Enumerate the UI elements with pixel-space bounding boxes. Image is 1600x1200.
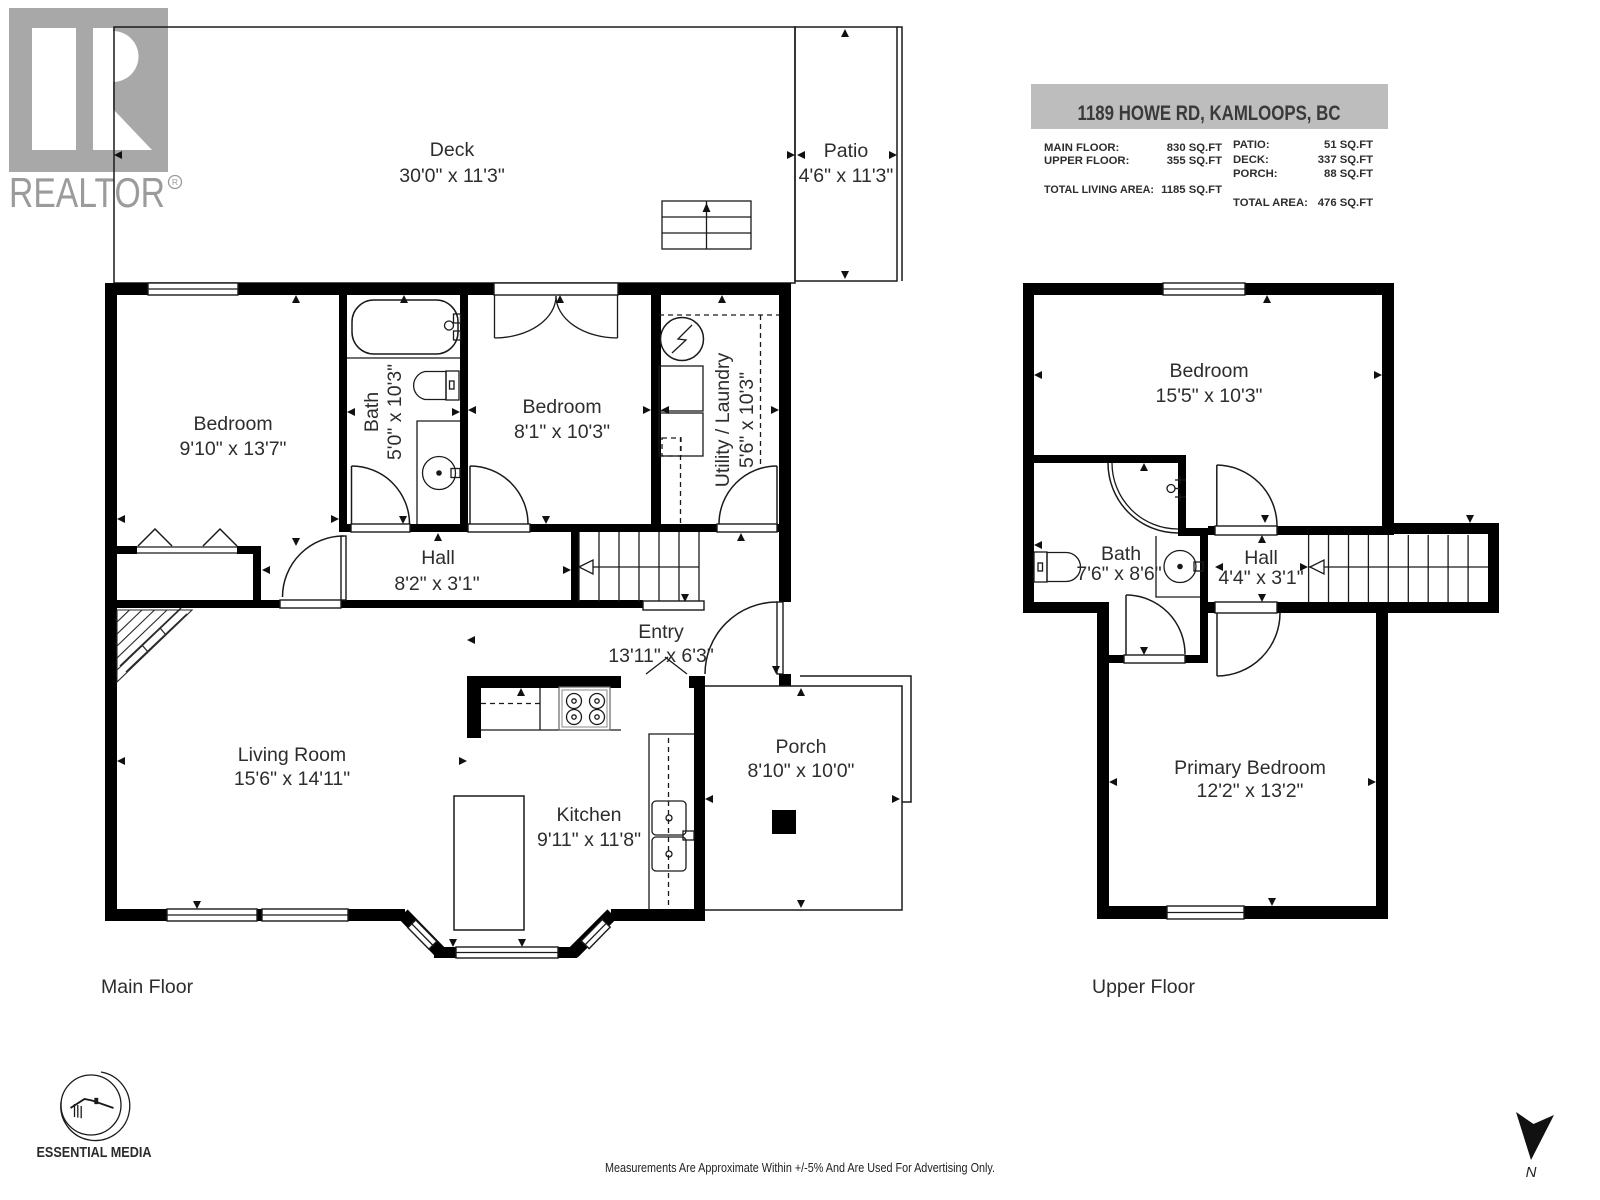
svg-text:R: R [172,177,178,187]
svg-text:1189 HOWE RD, KAMLOOPS, BC: 1189 HOWE RD, KAMLOOPS, BC [1078,102,1341,125]
svg-text:355 SQ.FT: 355 SQ.FT [1167,155,1222,167]
svg-text:DECK:: DECK: [1233,154,1269,166]
svg-text:Bedroom: Bedroom [1169,360,1248,382]
svg-text:Bath: Bath [1101,543,1141,565]
svg-text:13'11" x 6'3": 13'11" x 6'3" [608,645,714,667]
svg-text:15'5" x 10'3": 15'5" x 10'3" [1156,385,1263,407]
svg-text:5'6" x 10'3": 5'6" x 10'3" [736,372,758,468]
svg-text:8'1" x 10'3": 8'1" x 10'3" [514,421,610,443]
svg-text:9'11" x 11'8": 9'11" x 11'8" [537,829,641,851]
svg-text:1185 SQ.FT: 1185 SQ.FT [1161,184,1222,196]
svg-text:7'6" x 8'6": 7'6" x 8'6" [1076,563,1161,585]
svg-text:88 SQ.FT: 88 SQ.FT [1324,168,1373,180]
svg-text:ESSENTIAL MEDIA: ESSENTIAL MEDIA [37,1145,152,1161]
svg-text:REALTOR: REALTOR [9,169,165,216]
svg-text:4'4" x 3'1": 4'4" x 3'1" [1218,567,1303,589]
svg-text:476 SQ.FT: 476 SQ.FT [1318,197,1373,209]
svg-text:TOTAL AREA:: TOTAL AREA: [1233,197,1308,209]
svg-text:TOTAL LIVING AREA:: TOTAL LIVING AREA: [1044,184,1154,196]
svg-text:UPPER FLOOR:: UPPER FLOOR: [1044,155,1129,167]
svg-text:Patio: Patio [824,140,869,162]
svg-text:Main Floor: Main Floor [101,976,194,998]
svg-text:30'0" x 11'3": 30'0" x 11'3" [399,165,505,187]
svg-text:Living Room: Living Room [238,744,346,766]
svg-text:15'6" x 14'11": 15'6" x 14'11" [234,768,350,790]
svg-text:Deck: Deck [430,139,475,161]
svg-text:Bath: Bath [361,392,383,432]
svg-text:Kitchen: Kitchen [556,804,621,826]
svg-text:Bedroom: Bedroom [193,413,272,435]
svg-text:Primary Bedroom: Primary Bedroom [1174,757,1326,779]
svg-text:8'10" x 10'0": 8'10" x 10'0" [748,760,855,782]
svg-text:12'2" x 13'2": 12'2" x 13'2" [1197,780,1304,802]
svg-text:Hall: Hall [1244,547,1278,569]
svg-text:8'2" x 3'1": 8'2" x 3'1" [394,573,479,595]
svg-text:830 SQ.FT: 830 SQ.FT [1167,142,1222,154]
svg-text:PORCH:: PORCH: [1233,168,1278,180]
svg-text:51 SQ.FT: 51 SQ.FT [1324,139,1373,151]
svg-text:Utility / Laundry: Utility / Laundry [712,353,734,488]
svg-text:Bedroom: Bedroom [522,396,601,418]
svg-text:Measurements Are Approximate W: Measurements Are Approximate Within +/-5… [605,1160,995,1175]
svg-text:Upper Floor: Upper Floor [1092,976,1195,998]
svg-text:N: N [1526,1164,1537,1181]
svg-text:Porch: Porch [776,736,827,758]
svg-text:4'6" x 11'3": 4'6" x 11'3" [799,165,894,187]
svg-text:337 SQ.FT: 337 SQ.FT [1318,154,1373,166]
svg-text:PATIO:: PATIO: [1233,139,1270,151]
svg-text:Entry: Entry [638,621,684,643]
svg-text:MAIN FLOOR:: MAIN FLOOR: [1044,142,1119,154]
svg-text:9'10" x 13'7": 9'10" x 13'7" [180,438,287,460]
svg-text:Hall: Hall [421,547,455,569]
svg-text:5'0" x 10'3": 5'0" x 10'3" [384,364,406,460]
